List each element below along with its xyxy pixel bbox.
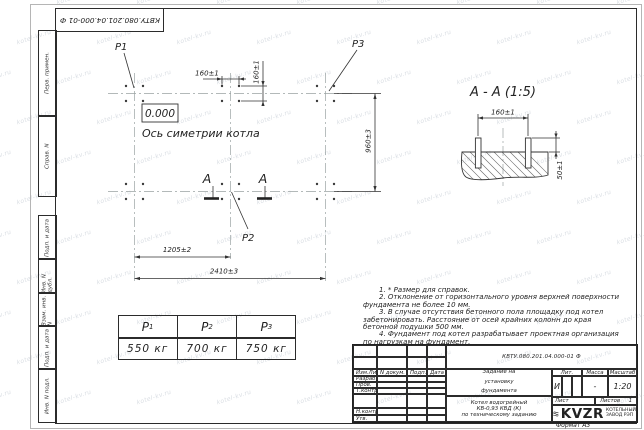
- empty-cell: [407, 345, 427, 357]
- scale-value: 1:20: [608, 376, 637, 397]
- axis-of-symmetry-label: Ось симетрии котла: [142, 127, 260, 140]
- load-table-header-p1: P1: [118, 315, 178, 339]
- side-label: Инв. N дубл.: [39, 259, 56, 293]
- side-label: Справ. N: [39, 116, 56, 196]
- section-dim-height-label: 50±1: [556, 160, 564, 179]
- empty-cell: [407, 415, 427, 422]
- load-table-header-p3: P3: [236, 315, 296, 339]
- mass-value: -: [582, 376, 608, 397]
- section-dim-bolts-label: 160±1: [491, 109, 515, 117]
- empty-cell: [572, 376, 582, 397]
- lit-value: И: [552, 376, 562, 397]
- side-label: Подп. и дата: [39, 216, 56, 259]
- side-label: Перв. примен.: [39, 31, 56, 116]
- row-nkontr: Н.контр.: [353, 408, 377, 415]
- anchor-bolt-left: [475, 138, 481, 168]
- section-letter-left: А: [202, 171, 212, 186]
- section-cut-marks: [204, 186, 272, 199]
- section-letter-right: А: [258, 171, 268, 186]
- empty-cell: [377, 394, 407, 408]
- dim-full-label: 2410±3: [210, 268, 238, 276]
- empty-cell: [377, 415, 407, 422]
- empty-cell: [353, 394, 377, 408]
- point-label-p2: P2: [242, 233, 254, 244]
- empty-cell: [427, 345, 446, 357]
- col-n-dokum: N докум.: [377, 369, 407, 376]
- side-label: Взам. инв. N: [39, 293, 56, 326]
- doc-subtitle: Котел водогрейный КВ-0,93 КВД (К) по тех…: [446, 396, 552, 422]
- side-box-podp-data-1: Подп. и дата: [38, 215, 57, 260]
- sheets-cell: Листов 1: [595, 397, 637, 405]
- empty-cell: [427, 415, 446, 422]
- load-table-header-p2: P2: [177, 315, 237, 339]
- empty-cell: [407, 394, 427, 408]
- empty-cell: [427, 394, 446, 408]
- level-mark: 0.000: [145, 108, 175, 120]
- section-dimension-arrows: [478, 116, 558, 156]
- empty-cell: [377, 357, 407, 369]
- side-box-perv-primen: Перв. примен.: [38, 30, 57, 117]
- section-title: А - А (1:5): [469, 85, 536, 100]
- sheets-value: 1: [629, 398, 632, 404]
- col-data: Дата: [427, 369, 446, 376]
- anchor-bolt-right: [525, 138, 531, 168]
- empty-cell: [377, 408, 407, 415]
- technical-notes: 1. * Размер для справок. 2. Отклонение о…: [363, 287, 627, 346]
- load-table: P1 P2 P3 550 кг 700 кг 750 кг: [118, 315, 296, 360]
- lit-label: Лит.: [552, 369, 582, 376]
- side-box-sprav-n: Справ. N: [38, 115, 57, 197]
- side-label: Инв. N подл.: [39, 369, 56, 422]
- logo-cell: KVZR КОТЕЛЬНЫЙ ЗАВОД РЭП: [552, 405, 637, 422]
- format-label: Формат А3: [556, 422, 590, 429]
- side-label: Подп. и дата: [39, 326, 56, 369]
- empty-cell: [377, 345, 407, 357]
- top-doc-stamp-text: КВТУ.080.201.04.000-01 Ф: [60, 16, 160, 25]
- doc-number: КВТУ.080.201.04.000-01 Ф: [446, 345, 637, 369]
- empty-cell: [427, 408, 446, 415]
- empty-cell: [427, 357, 446, 369]
- kvzr-spring-icon: [553, 408, 559, 420]
- note-3: 3. В случае отсутствия бетонного пола пл…: [363, 309, 627, 331]
- empty-cell: [562, 376, 572, 397]
- side-box-podp-data-2: Подп. и дата: [38, 325, 57, 370]
- kvzr-logo-text: KVZR: [561, 406, 604, 422]
- load-value-p3: 750 кг: [236, 338, 296, 361]
- dim-bolt-y-label: 160±1: [253, 60, 261, 84]
- side-box-inv-dubl: Инв. N дубл.: [38, 258, 57, 294]
- dim-bolt-x-label: 160±1: [195, 70, 219, 78]
- kvzr-logo-caption: КОТЕЛЬНЫЙ ЗАВОД РЭП: [606, 409, 636, 419]
- side-box-inv-podl: Инв. N подл.: [38, 368, 57, 423]
- empty-cell: [407, 408, 427, 415]
- point-label-p3: P3: [352, 39, 364, 50]
- sheets-label: Листов: [600, 398, 620, 404]
- sheet-label: Лист: [552, 397, 595, 405]
- empty-cell: [353, 357, 377, 369]
- empty-cell: [407, 357, 427, 369]
- load-value-p1: 550 кг: [118, 338, 178, 361]
- top-doc-stamp: КВТУ.080.201.04.000-01 Ф: [55, 8, 164, 32]
- load-value-p2: 700 кг: [177, 338, 237, 361]
- scale-label: Масштаб: [608, 369, 637, 376]
- side-box-vzam-inv: Взам. инв. N: [38, 292, 57, 327]
- point-label-p1: P1: [115, 42, 127, 53]
- note-2: 2. Отклонение от горизонтального уровня …: [363, 294, 627, 309]
- dim-half-label: 1205±2: [163, 246, 192, 254]
- empty-cell: [353, 345, 377, 357]
- col-podp: Подп.: [407, 369, 427, 376]
- doc-title: Задание на установку фундамента: [446, 369, 552, 396]
- mass-label: Масса: [582, 369, 608, 376]
- title-block: Изм.Лист N докум. Подп. Дата Разраб. Про…: [352, 344, 638, 423]
- drawing-sheet: kotel-kv.rukotel-kv.rukotel-kv.rukotel-k…: [0, 0, 644, 430]
- col-izm-list: Изм.Лист: [353, 369, 377, 376]
- dim-rows-label: 960±3: [365, 129, 373, 153]
- row-utv: Утв.: [353, 415, 377, 422]
